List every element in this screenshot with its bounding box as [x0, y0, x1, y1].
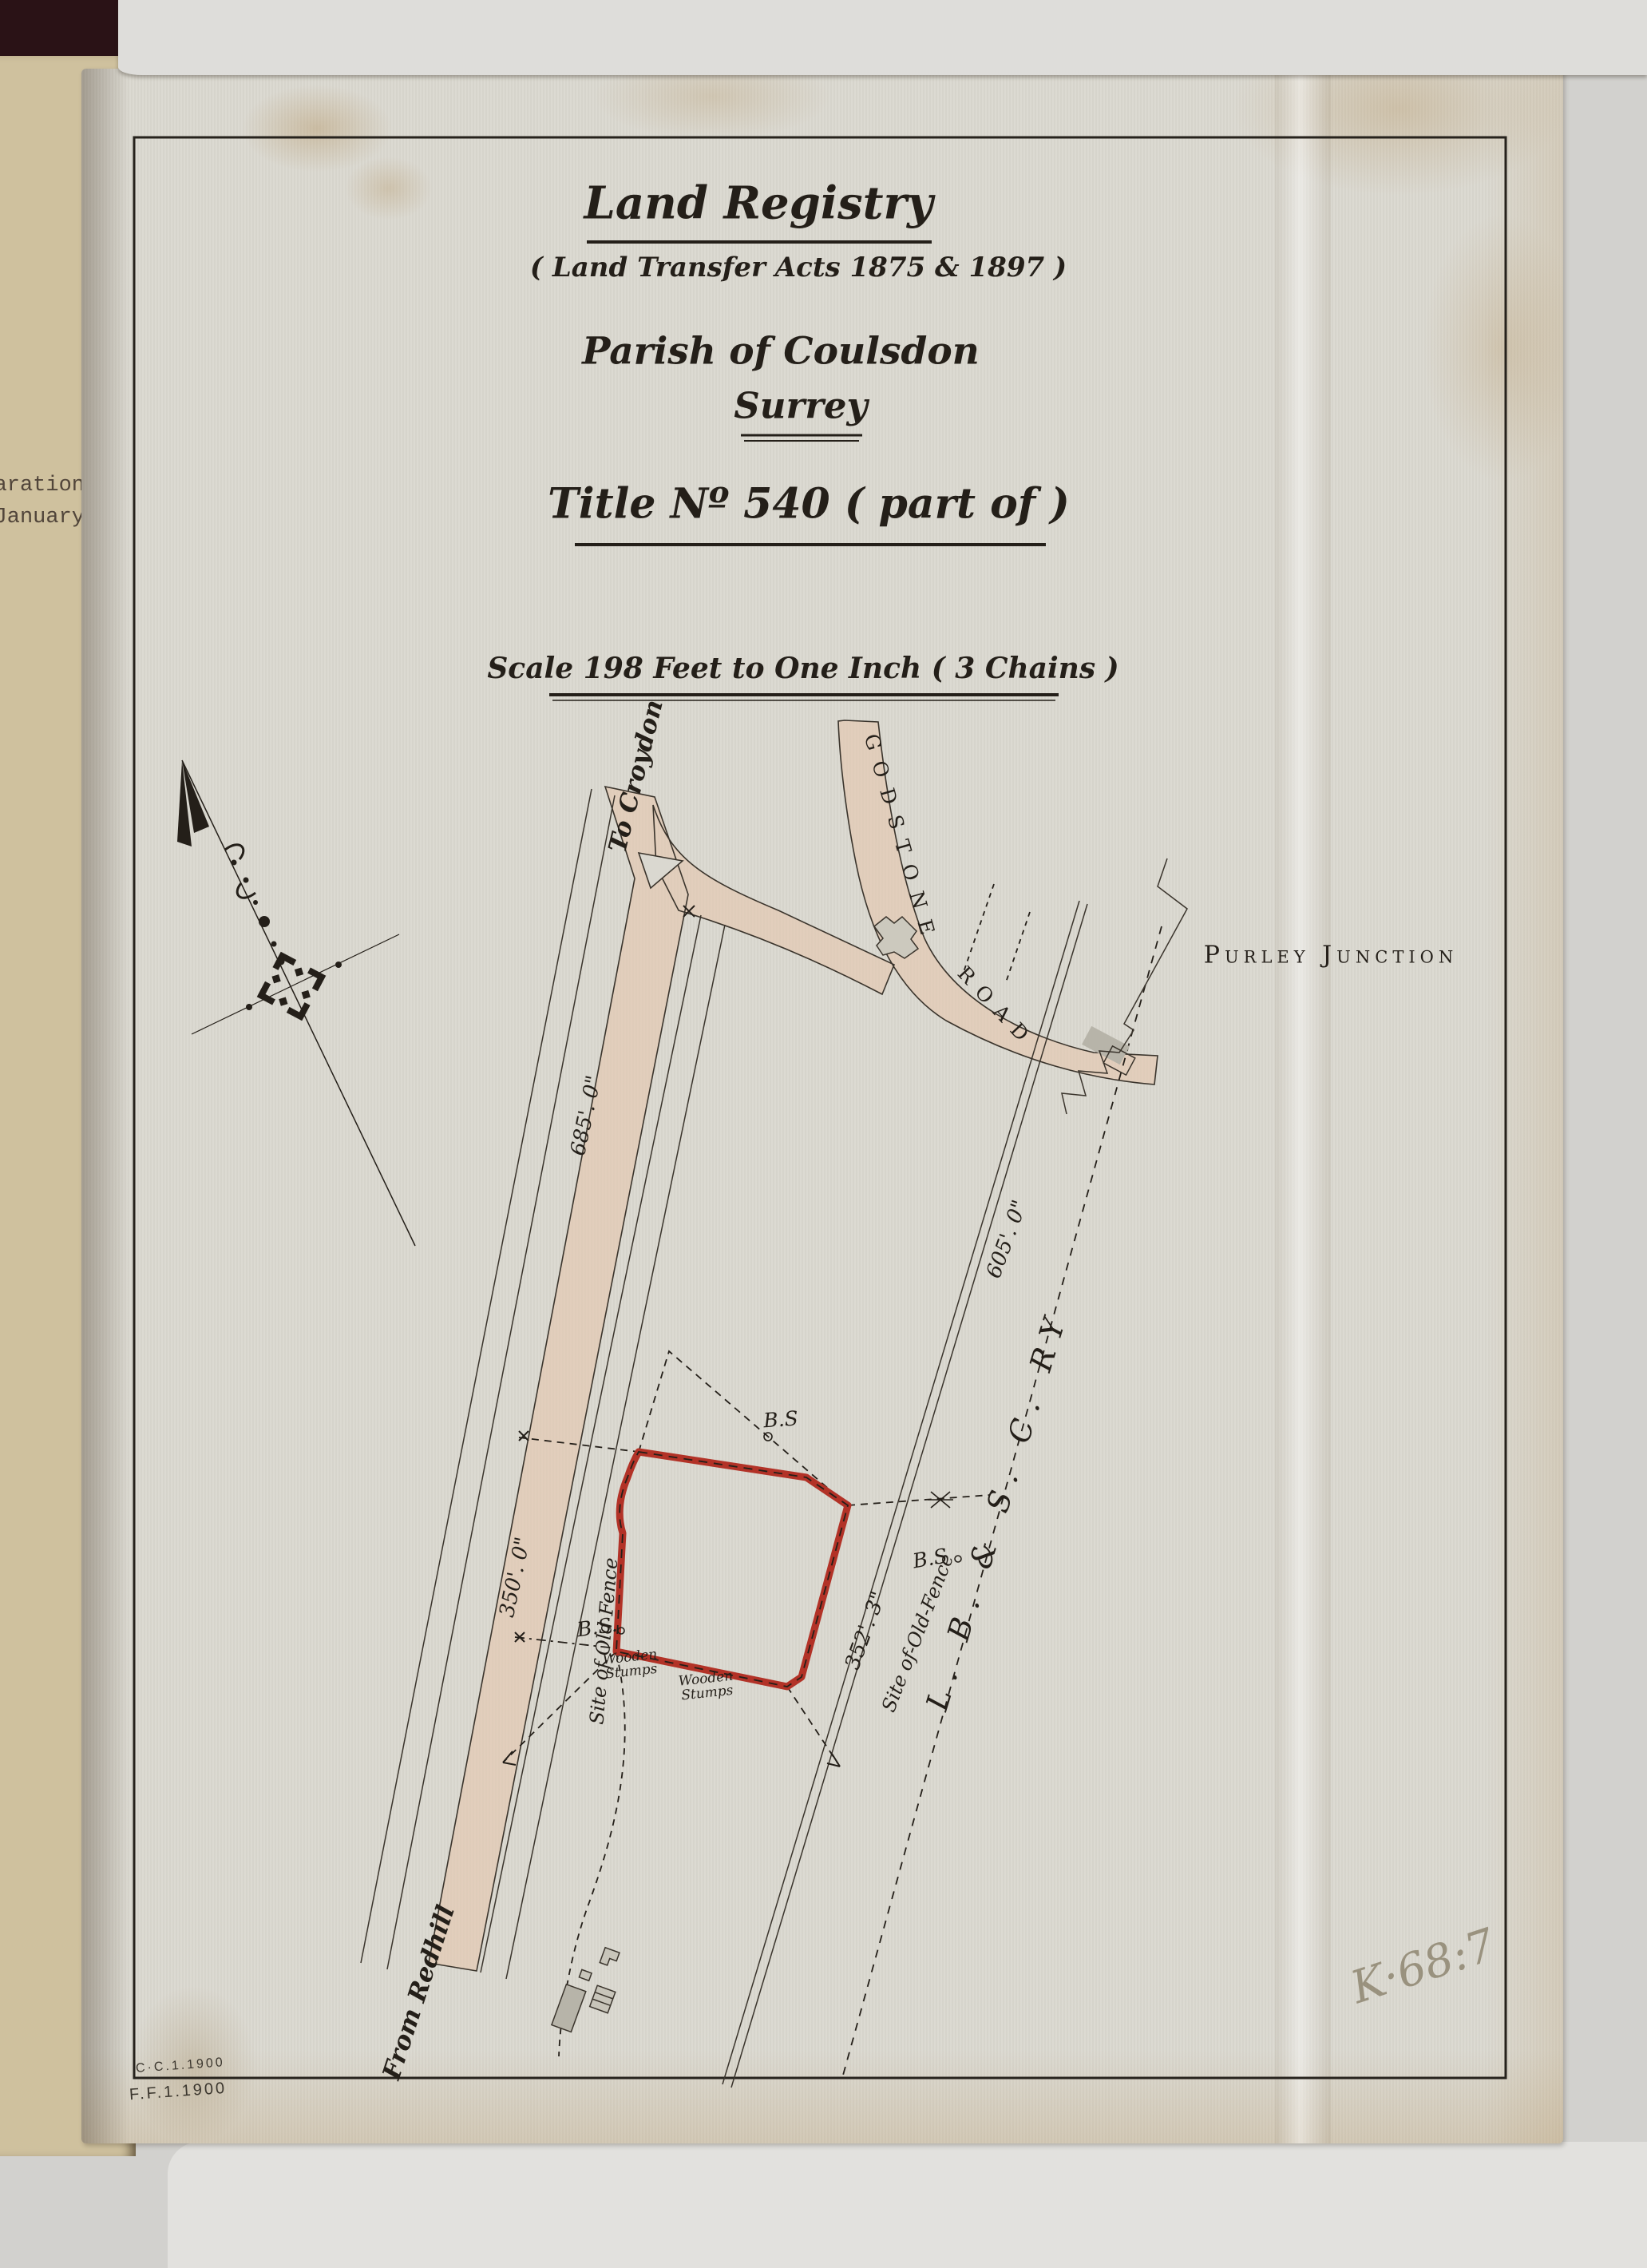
title-underlines	[549, 242, 1059, 700]
acts-subtitle: ( Land Transfer Acts 1875 & 1897 )	[530, 254, 1067, 283]
map-frame-border	[134, 137, 1506, 2078]
wooden-stumps-2: Wooden Stumps	[678, 1670, 735, 1704]
scale-line: Scale 198 Feet to One Inch ( 3 Chains )	[487, 654, 1118, 684]
title-number-line: Title Nº 540 ( part of )	[548, 483, 1070, 527]
north-arrow	[177, 760, 415, 1246]
overlapping-paper-top	[118, 0, 1647, 75]
star-marker	[928, 1492, 953, 1508]
parish-line: Parish of Coulsdon	[582, 331, 980, 371]
county-line: Surrey	[734, 387, 867, 424]
label-purley-junction: Purley Junction	[1204, 942, 1458, 968]
scanned-map-page: aration January	[0, 0, 1647, 2268]
page-title: Land Registry	[584, 180, 932, 228]
wooden-stumps-1: Wooden Stumps	[602, 1648, 659, 1683]
benchmark-top: B.S	[762, 1408, 798, 1431]
